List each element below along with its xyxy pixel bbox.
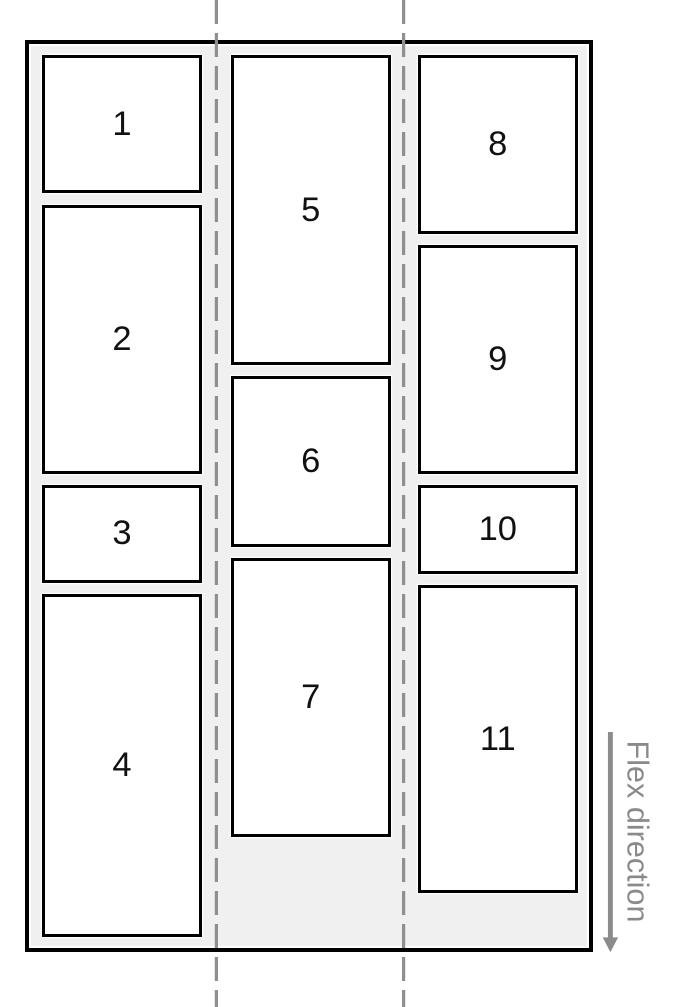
svg-text:Flex direction: Flex direction — [621, 741, 655, 923]
